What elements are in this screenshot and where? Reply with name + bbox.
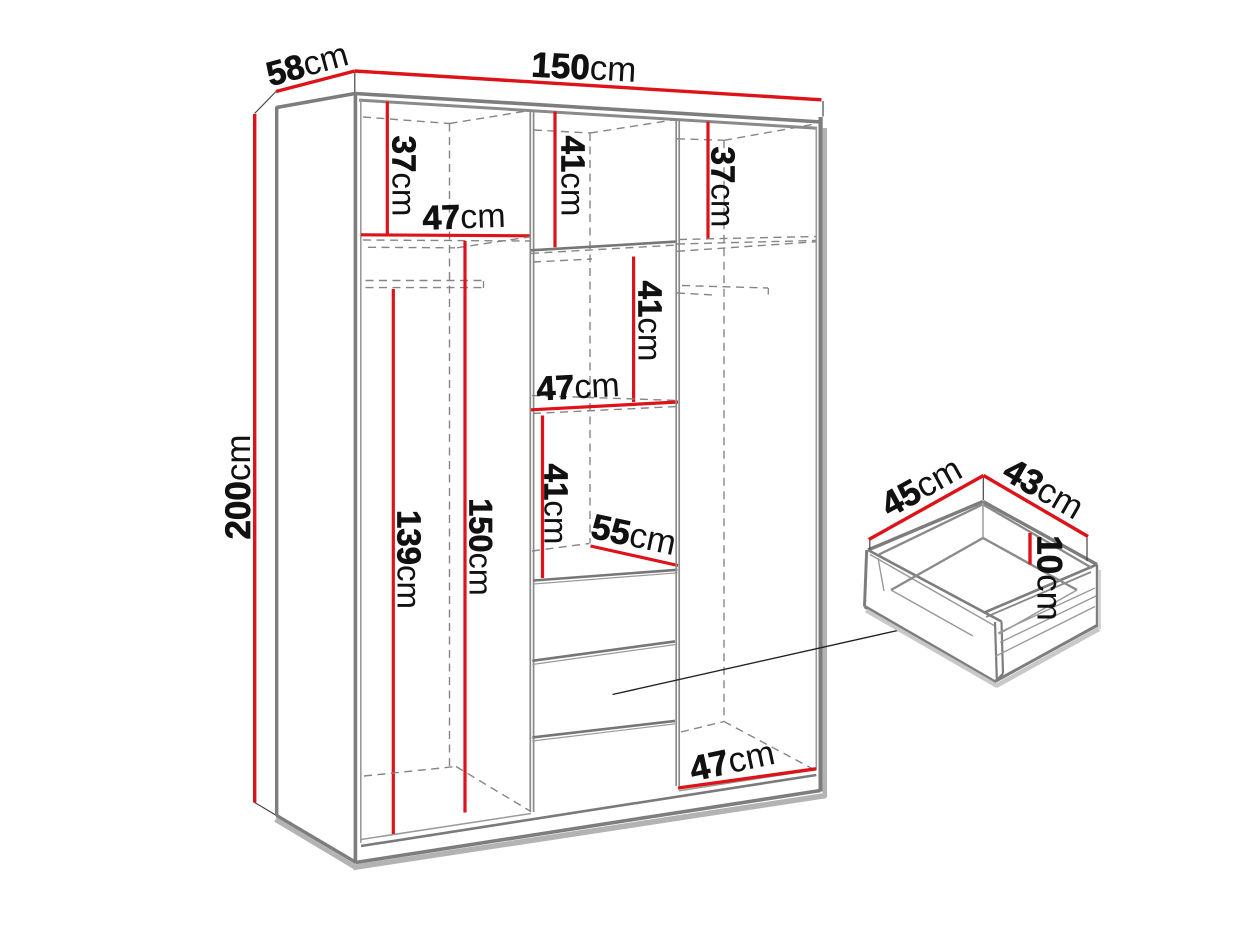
svg-text:37cm: 37cm xyxy=(705,147,742,228)
svg-text:10cm: 10cm xyxy=(1029,535,1068,621)
svg-text:150cm: 150cm xyxy=(530,45,637,89)
svg-text:150cm: 150cm xyxy=(462,498,498,596)
svg-text:41cm: 41cm xyxy=(538,464,575,545)
svg-text:47cm: 47cm xyxy=(422,197,506,238)
svg-text:200cm: 200cm xyxy=(219,434,258,539)
svg-text:139cm: 139cm xyxy=(391,510,428,609)
svg-text:41cm: 41cm xyxy=(632,281,669,362)
svg-text:37cm: 37cm xyxy=(386,136,423,217)
svg-text:41cm: 41cm xyxy=(555,136,592,217)
svg-text:47cm: 47cm xyxy=(536,366,621,408)
